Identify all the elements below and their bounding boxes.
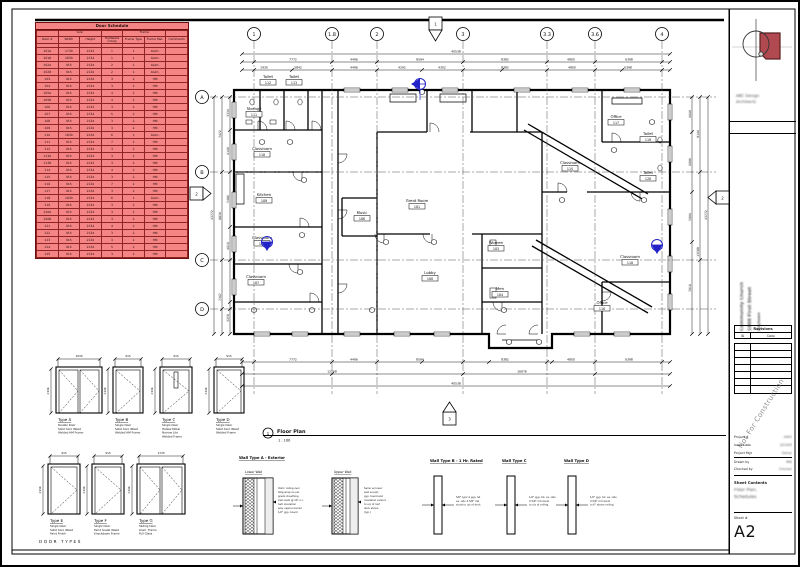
dim-label: 23772: [210, 210, 214, 220]
dimensions: 4053877724496859483824800639819305842449…: [210, 50, 710, 388]
elevation-marker: [652, 240, 663, 255]
schedule-row: 117915213432HM: [37, 188, 188, 195]
schedule-column-header: Comments: [166, 36, 188, 44]
section-marker: 2: [190, 187, 211, 200]
svg-text:1: 1: [434, 22, 437, 27]
wall-type: Wall Type B - 1 Hr. Rated5/8" type X gyp…: [422, 458, 483, 534]
revision-row: [735, 344, 791, 351]
wall-type-note: to u/s of roof: [364, 503, 380, 506]
titleblock-field: Drawn byMW: [734, 457, 792, 465]
divider: [730, 133, 796, 134]
door-schedule-title: Door Schedule: [36, 23, 188, 30]
sheet-contents: Floor Plan, Schedules: [734, 488, 792, 501]
schedule-row: 105A915213442HM: [37, 90, 188, 97]
schedule-row: 102B915213421Alum.: [37, 69, 188, 76]
titleblock-field: Checked byChecker: [734, 465, 792, 473]
divider: [734, 512, 792, 513]
dim-label: 6398: [625, 58, 633, 62]
dim-label: 4496: [350, 58, 358, 62]
dim-label: 8594: [416, 358, 424, 362]
svg-text:Classroom: Classroom: [246, 274, 266, 279]
svg-text:117: 117: [613, 121, 619, 125]
dim-label: 8382: [501, 58, 509, 62]
svg-text:116: 116: [599, 307, 605, 311]
wall-subsection-label: Upper Wall: [334, 470, 351, 474]
wall-type-heading: Wall Type B - 1 Hr. Rated: [430, 458, 483, 463]
svg-text:2: 2: [195, 192, 198, 197]
svg-text:Office: Office: [596, 300, 608, 305]
dim-label: 3334: [226, 109, 230, 117]
drawing-sheet-page: 11.8233.33.64ABCD 4053877724496859483824…: [0, 0, 800, 567]
dim-label: 5842: [294, 66, 302, 70]
door-type-desc: Welded HM Frame: [58, 431, 84, 435]
wall-type-note: 3-5/8" mtl studs: [590, 500, 611, 503]
wall-type-note: to u/s of ceiling: [529, 504, 549, 507]
title-block: ABC Design Architects Community Church 1…: [729, 9, 795, 554]
section-marker: 1: [429, 17, 442, 41]
door-schedule-table: Size Frame Door #WidthHeightHardware Gro…: [36, 30, 188, 259]
wall-type-note: 1/2" gyp. bd. ea. side: [590, 496, 617, 499]
dim-label: 23772: [704, 210, 708, 220]
revision-row: [735, 358, 791, 365]
door-types-label: DOOR TYPES: [39, 539, 82, 544]
svg-text:B: B: [200, 170, 204, 176]
dim-label: 6398: [625, 358, 633, 362]
dim-label: 6096: [688, 158, 692, 166]
svg-text:3: 3: [448, 417, 451, 422]
svg-text:Toilet: Toilet: [642, 131, 653, 136]
dim-label: 6398: [624, 66, 632, 70]
door-width-dim: 1830: [75, 354, 82, 358]
svg-text:A: A: [200, 95, 204, 101]
titleblock-fields: Project #0443Issue Date2/22/05Project Mg…: [734, 433, 792, 473]
schedule-row: 125915213432HM: [37, 251, 188, 258]
door-height-dim: 2134: [38, 486, 42, 493]
door-width-dim: 915: [173, 354, 179, 358]
wall-type-heading: Wall Type C: [502, 458, 527, 463]
dim-label: 7772: [289, 58, 297, 62]
schedule-row: 101A1730213411Alum.: [37, 48, 188, 55]
door-type-label: Type G: [138, 518, 153, 523]
svg-text:1.8: 1.8: [328, 32, 336, 38]
wall-type: Wall Type C1/2" gyp. bd. ea. side3-5/8" …: [495, 458, 556, 534]
sheet-number-label: Sheet #: [734, 516, 792, 520]
schedule-row: 123915213432HM: [37, 237, 188, 244]
wall-type-note: bldg wrap on ext.: [278, 491, 300, 494]
door-type: 9152134Type BSingle DoorSolid Core WoodW…: [103, 354, 143, 435]
door-type-desc: Knockdown Frame: [94, 532, 120, 536]
schedule-row: 107915213452HM: [37, 111, 188, 118]
wall-types: Wall Type A - ExteriorLower WallHoriz. s…: [233, 455, 617, 534]
svg-text:Storage: Storage: [247, 106, 263, 111]
dim-label: 4800: [568, 66, 576, 70]
door-type: 9152134Type ESingle DoorSolid Core WoodP…: [38, 451, 80, 536]
room-tag: Men104: [492, 286, 508, 297]
schedule-row: 111915213472HM: [37, 139, 188, 146]
view-scale: 1 : 100: [278, 439, 290, 443]
svg-text:Classroom: Classroom: [560, 160, 580, 165]
door-type: 9152134Type DSingle DoorSolid Core WoodW…: [204, 354, 244, 435]
project-name: Community Church 1000 First Street Anyto…: [740, 231, 761, 331]
dim-label: 7772: [289, 358, 297, 362]
schedule-row: 104915213432HM: [37, 83, 188, 90]
wall-subsection-label: Lower Wall: [245, 470, 262, 474]
door-type: 18302134Type ADouble DoorSolid Core Wood…: [46, 354, 102, 435]
dim-label: 7472: [218, 130, 222, 138]
schedule-column-header: Frame Mat.: [144, 36, 166, 44]
svg-text:118: 118: [627, 261, 633, 265]
svg-text:D: D: [200, 307, 204, 313]
section-marker: 2: [708, 191, 729, 204]
sheet-contents-label: Sheet Contents: [734, 480, 792, 485]
dim-label: 4140: [226, 147, 230, 155]
door-type-desc: Welded Frame: [162, 434, 182, 438]
room-tag: Toilet113: [286, 74, 302, 85]
wall-type-note: poly vapour barrier: [278, 507, 303, 510]
door-type-desc: Full Glass: [139, 532, 153, 536]
schedule-row: 103915213432HM: [37, 76, 188, 83]
schedule-row: 120B915213432HM: [37, 216, 188, 223]
svg-text:Classroom: Classroom: [620, 254, 640, 259]
titleblock-field: Project #0443: [734, 433, 792, 441]
svg-text:113: 113: [291, 81, 297, 85]
wall-type-note: wall except:: [364, 491, 379, 494]
svg-text:104: 104: [497, 293, 503, 297]
door-type: 17302134Type GSliding DoorAlum. FrameFul…: [127, 451, 185, 536]
svg-text:Music: Music: [357, 210, 368, 215]
schedule-row: 120A915213432HM: [37, 209, 188, 216]
room-tag: Classroom118: [620, 254, 640, 265]
schedule-row: 114915213442HM: [37, 167, 188, 174]
wall-type-note: Same as lower: [364, 487, 383, 490]
schedule-row: 122915213432HM: [37, 230, 188, 237]
door-type: 9152134Type CSingle DoorHollow MetalNarr…: [150, 354, 192, 438]
dim-label: 40538: [451, 50, 461, 54]
wall-type-heading: Wall Type A - Exterior: [239, 455, 285, 460]
room-tag: Classroom115: [560, 160, 580, 171]
schedule-row: 113A915213432HM: [37, 153, 188, 160]
room-tag: Toilet120: [640, 170, 656, 181]
wall-type-note: 1/2" gyp. board: [278, 511, 298, 514]
dim-label: 8382: [501, 66, 509, 70]
dim-label: 3259: [226, 314, 230, 322]
wall-type-note: batt insulation: [278, 503, 296, 506]
schedule-row: 113B915213432HM: [37, 160, 188, 167]
svg-text:Men: Men: [496, 286, 505, 291]
revision-row: [735, 386, 791, 393]
titleblock-field: Project MgrOwner: [734, 449, 792, 457]
door-height-dim: 2134: [82, 486, 86, 493]
revisions-title: Revisions: [734, 325, 792, 332]
schedule-row: 106915213432HM: [37, 104, 188, 111]
schedule-column-header: Height: [80, 36, 102, 44]
room-tag: Lobby100: [422, 270, 438, 281]
svg-text:111: 111: [251, 113, 257, 117]
door-type-label: Type F: [93, 518, 107, 523]
svg-text:Office: Office: [610, 114, 622, 119]
dim-label: 8594: [416, 58, 424, 62]
door-types: 18302134Type ADouble DoorSolid Core Wood…: [38, 354, 244, 536]
schedule-row: 108915213432HM: [37, 118, 188, 125]
firm-logo-icon: [732, 17, 792, 83]
svg-text:100: 100: [427, 277, 433, 281]
door-schedule: Door Schedule Size Frame Door #WidthHeig…: [35, 22, 189, 259]
room-tag: Classroom107: [246, 274, 266, 285]
view-title-text: Floor Plan: [277, 429, 306, 435]
dim-label: 4496: [350, 358, 358, 362]
svg-text:Women: Women: [489, 240, 504, 245]
svg-text:3: 3: [461, 32, 464, 38]
schedule-column-header: Hardware Group: [101, 36, 123, 44]
svg-text:120: 120: [645, 177, 651, 181]
svg-text:2: 2: [721, 196, 724, 201]
door-type-desc: Welded Frame: [216, 431, 236, 435]
schedule-row: 112915213432HM: [37, 146, 188, 153]
schedule-row: 124915213452HM: [37, 244, 188, 251]
wall-type: Wall Type A - ExteriorLower WallHoriz. s…: [233, 455, 386, 534]
door-width-dim: 915: [105, 451, 111, 455]
room-tag: Toilet112: [260, 74, 276, 85]
schedule-column-header: Frame Type: [123, 36, 145, 44]
dim-label: 4800: [567, 58, 575, 62]
svg-text:3.3: 3.3: [543, 32, 551, 38]
divider: [730, 121, 796, 122]
schedule-row: 109915213432HM: [37, 125, 188, 132]
wall-type-note: (typ.): [364, 511, 371, 514]
dim-label: 16976: [517, 370, 527, 374]
door-height-dim: 2134: [46, 387, 50, 394]
door-type-label: Type C: [161, 417, 175, 422]
svg-text:106: 106: [359, 217, 365, 221]
svg-text:119: 119: [645, 138, 651, 142]
dim-label: 4800: [567, 358, 575, 362]
schedule-row: 116915213472HM: [37, 181, 188, 188]
wall-type-note: 1/2" gyp. bd. ea. side: [529, 496, 556, 499]
svg-text:1: 1: [252, 32, 255, 38]
room-tag: Toilet119: [640, 131, 656, 142]
sheet-number: A2: [734, 522, 792, 541]
wall-type: Wall Type D1/2" gyp. bd. ea. side3-5/8" …: [556, 458, 617, 534]
section-marker: 3: [443, 402, 456, 425]
dim-label: 12268: [327, 370, 337, 374]
wall-type-note: to 6" above ceiling: [590, 504, 614, 507]
wall-type-heading: Wall Type D: [564, 458, 589, 463]
schedule-row: 102A915213421Alum.: [37, 62, 188, 69]
svg-text:107: 107: [253, 281, 259, 285]
svg-text:Kitchen: Kitchen: [257, 192, 272, 197]
door-type-label: Type B: [114, 417, 128, 422]
schedule-row: 101B1830213411Alum.: [37, 55, 188, 62]
dim-label: 7010: [688, 284, 692, 292]
wall-type-note: 3-5/8" mtl studs: [529, 500, 550, 503]
door-type-desc: Welded HM Frame: [115, 431, 141, 435]
dim-label: 1930: [260, 66, 268, 70]
schedule-row: 1181830213461Alum.: [37, 195, 188, 202]
dim-label: 4496: [350, 66, 358, 70]
room-tag: Office116: [594, 300, 610, 311]
schedule-row: 119915213432HM: [37, 202, 188, 209]
room-tag: Storage111: [246, 106, 262, 117]
schedule-column-header: Width: [58, 36, 80, 44]
wall-type-note: 5/8" type X gyp. bd.: [456, 496, 481, 499]
divider: [734, 475, 792, 476]
wall-type-note: 2x6 studs @ 16" o.c.: [278, 499, 304, 502]
svg-text:110: 110: [259, 153, 265, 157]
svg-text:2: 2: [375, 32, 378, 38]
room-tag: Great Room101: [406, 198, 429, 209]
dim-label: 5486: [226, 195, 230, 203]
svg-text:103: 103: [493, 247, 499, 251]
firm-name: ABC Design Architects: [736, 93, 790, 105]
svg-text:Toilet: Toilet: [642, 170, 653, 175]
schedule-row: 121915213442HM: [37, 223, 188, 230]
svg-text:C: C: [200, 258, 204, 264]
schedule-column-header: Door #: [37, 36, 59, 44]
dim-label: 4302: [438, 66, 446, 70]
door-width-dim: 915: [226, 354, 232, 358]
svg-text:4: 4: [660, 32, 663, 38]
svg-text:115: 115: [567, 167, 573, 171]
wall-type-note: grade sheathing: [278, 495, 299, 498]
dim-label: 4610: [226, 242, 230, 250]
dim-label: 8839: [218, 212, 222, 220]
door-type-label: Type A: [57, 417, 71, 422]
svg-text:Toilet: Toilet: [288, 74, 299, 79]
door-height-dim: 2134: [150, 387, 154, 394]
door-type-desc: Paint Finish: [50, 532, 66, 536]
revisions-header: ID Date: [734, 332, 792, 339]
door-width-dim: 915: [61, 451, 67, 455]
door-type-label: Type D: [215, 417, 230, 422]
room-tag: Classroom110: [252, 146, 272, 157]
room-tag: Music106: [354, 210, 370, 221]
wall-type-note: ea. side 3-5/8" mtl: [456, 500, 479, 503]
schedule-row: 105B915213442HM: [37, 97, 188, 104]
door-height-dim: 2134: [103, 387, 107, 394]
wall-type-note: gyp. board and: [364, 495, 383, 498]
dim-label: 40538: [451, 382, 461, 386]
svg-text:109: 109: [261, 199, 267, 203]
wall-type-note: deck above: [364, 507, 379, 510]
door-width-dim: 1730: [157, 451, 164, 455]
door-type-label: Type E: [49, 518, 63, 523]
schedule-row: 115915213432HM: [37, 174, 188, 181]
svg-text:Toilet: Toilet: [262, 74, 273, 79]
room-tag: Kitchen109: [256, 192, 272, 203]
svg-text:112: 112: [265, 81, 271, 85]
svg-text:3.6: 3.6: [591, 32, 599, 38]
wall-type-note: Horiz. siding over: [278, 487, 301, 490]
wall-type-note: insulation extend: [364, 499, 386, 502]
door-width-dim: 915: [125, 354, 131, 358]
revision-row: [735, 351, 791, 358]
door-height-dim: 2134: [204, 387, 208, 394]
schedule-row: 1101830213461Alum.: [37, 132, 188, 139]
svg-text:Lobby: Lobby: [424, 270, 436, 275]
room-tag: Office117: [608, 114, 624, 125]
svg-text:Classroom: Classroom: [252, 146, 272, 151]
dim-label: 5004: [688, 213, 692, 221]
door-height-dim: 2134: [127, 486, 131, 493]
dim-label: 8382: [501, 358, 509, 362]
view-title: 1 Floor Plan 1 : 100: [263, 428, 726, 443]
dim-label: 4292: [398, 66, 406, 70]
dim-label: 9144: [696, 130, 700, 138]
windows: [232, 88, 672, 336]
svg-text:101: 101: [414, 205, 420, 209]
door-type: 9152134Type FSingle DoorPaint Grade Wood…: [82, 451, 124, 536]
dim-label: 4640: [688, 110, 692, 118]
room-tag: Women103: [488, 240, 504, 251]
dim-label: 7367: [218, 293, 222, 301]
svg-text:Great Room: Great Room: [406, 198, 429, 203]
titleblock-field: Issue Date2/22/05: [734, 441, 792, 449]
wall-type-note: studs to u/s of deck: [456, 504, 481, 507]
dim-label: 13589: [696, 247, 700, 257]
